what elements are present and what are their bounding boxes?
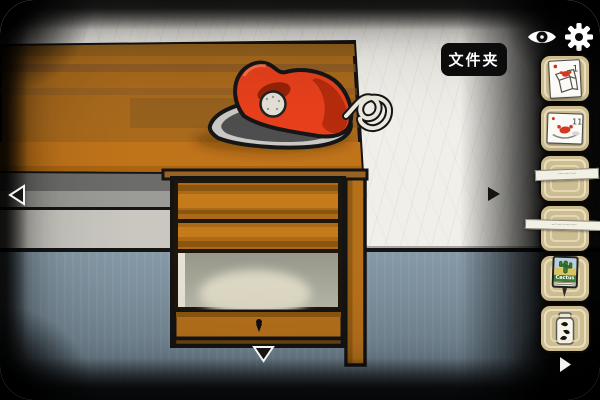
inventory-item-box-hint-card: 1: [548, 59, 582, 99]
sign-stake: [562, 288, 567, 297]
cactus-label: Cactus: [554, 275, 576, 283]
inventory-slot-4[interactable]: ‒··‒···‒··‒·: [541, 206, 589, 251]
item-name-tooltip: 文件夹: [441, 43, 507, 76]
cactus-sign-text-lines: [554, 282, 576, 287]
inventory-slot-5[interactable]: Cactus: [541, 256, 589, 301]
inventory-slot-2[interactable]: 11: [541, 106, 589, 151]
inventory-more-arrow[interactable]: [558, 356, 573, 373]
game-screen: 文件夹 1: [0, 0, 600, 400]
hud-layer: 文件夹 1: [0, 0, 600, 400]
hint-badge: 11: [572, 117, 582, 126]
inventory-slot-3[interactable]: ·‒··‒··‒·: [541, 156, 589, 201]
crab-drawing: [562, 70, 570, 76]
inventory-item-cactus-sign: Cactus: [551, 256, 578, 298]
inventory-item-crab-plate-card: 11: [546, 112, 583, 144]
slot-tape-label: ‒··‒···‒··‒·: [525, 219, 600, 231]
navigate-left-arrow[interactable]: [7, 184, 27, 206]
navigate-down-arrow[interactable]: [252, 345, 276, 364]
navigate-right-arrow[interactable]: [486, 185, 502, 203]
cactus-sign-board: Cactus: [552, 256, 579, 289]
cactus-icon: [554, 258, 577, 276]
slot-tape-label: ·‒··‒··‒·: [535, 168, 599, 181]
inventory-item-shrimp-jar: [553, 311, 577, 347]
hint-badge: 1: [572, 64, 578, 74]
eye-icon[interactable]: [526, 27, 558, 47]
inventory-slot-1[interactable]: 1: [541, 56, 589, 101]
cactus-picture: [554, 258, 577, 276]
inventory-slot-6[interactable]: [541, 306, 589, 351]
gear-icon[interactable]: [564, 22, 594, 52]
